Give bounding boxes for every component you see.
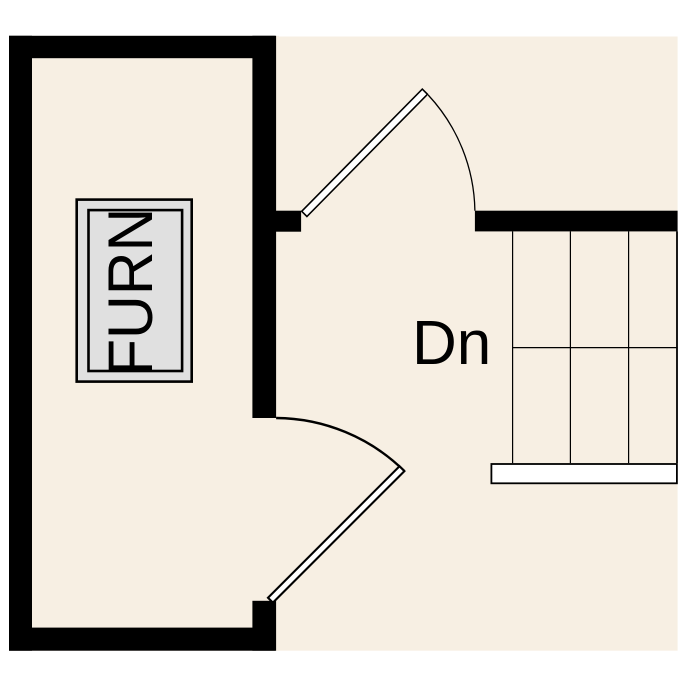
svg-text:FURN: FURN: [96, 208, 166, 376]
svg-text:Dn: Dn: [412, 309, 491, 378]
